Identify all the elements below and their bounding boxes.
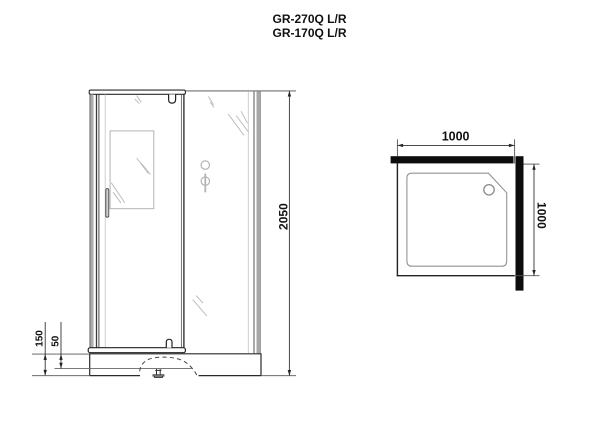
svg-text:150: 150 bbox=[35, 330, 46, 347]
svg-text:2050: 2050 bbox=[277, 203, 291, 230]
svg-text:1000: 1000 bbox=[534, 202, 548, 229]
svg-text:50: 50 bbox=[51, 335, 62, 347]
svg-text:GR-170Q L/R: GR-170Q L/R bbox=[273, 26, 347, 40]
svg-text:GR-270Q L/R: GR-270Q L/R bbox=[273, 12, 347, 26]
svg-text:1000: 1000 bbox=[442, 129, 470, 143]
